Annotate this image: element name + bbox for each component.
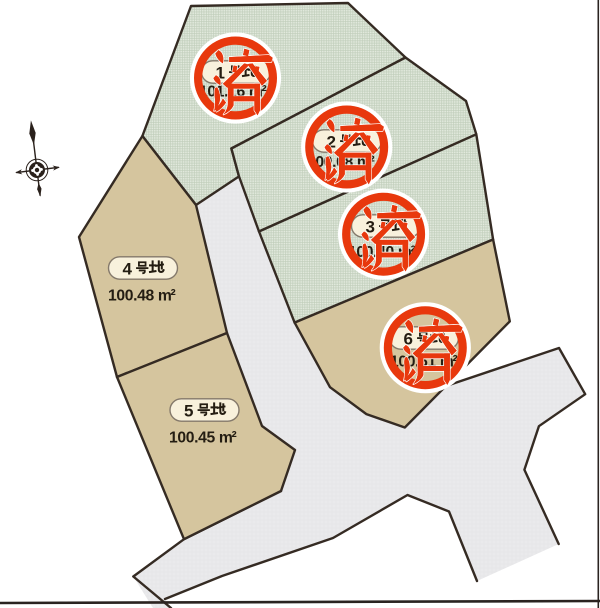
svg-text:5: 5 [184,402,193,421]
svg-text:100.48 m²: 100.48 m² [108,288,176,305]
svg-text:100.45 m²: 100.45 m² [169,430,237,447]
svg-text:4: 4 [123,260,133,279]
